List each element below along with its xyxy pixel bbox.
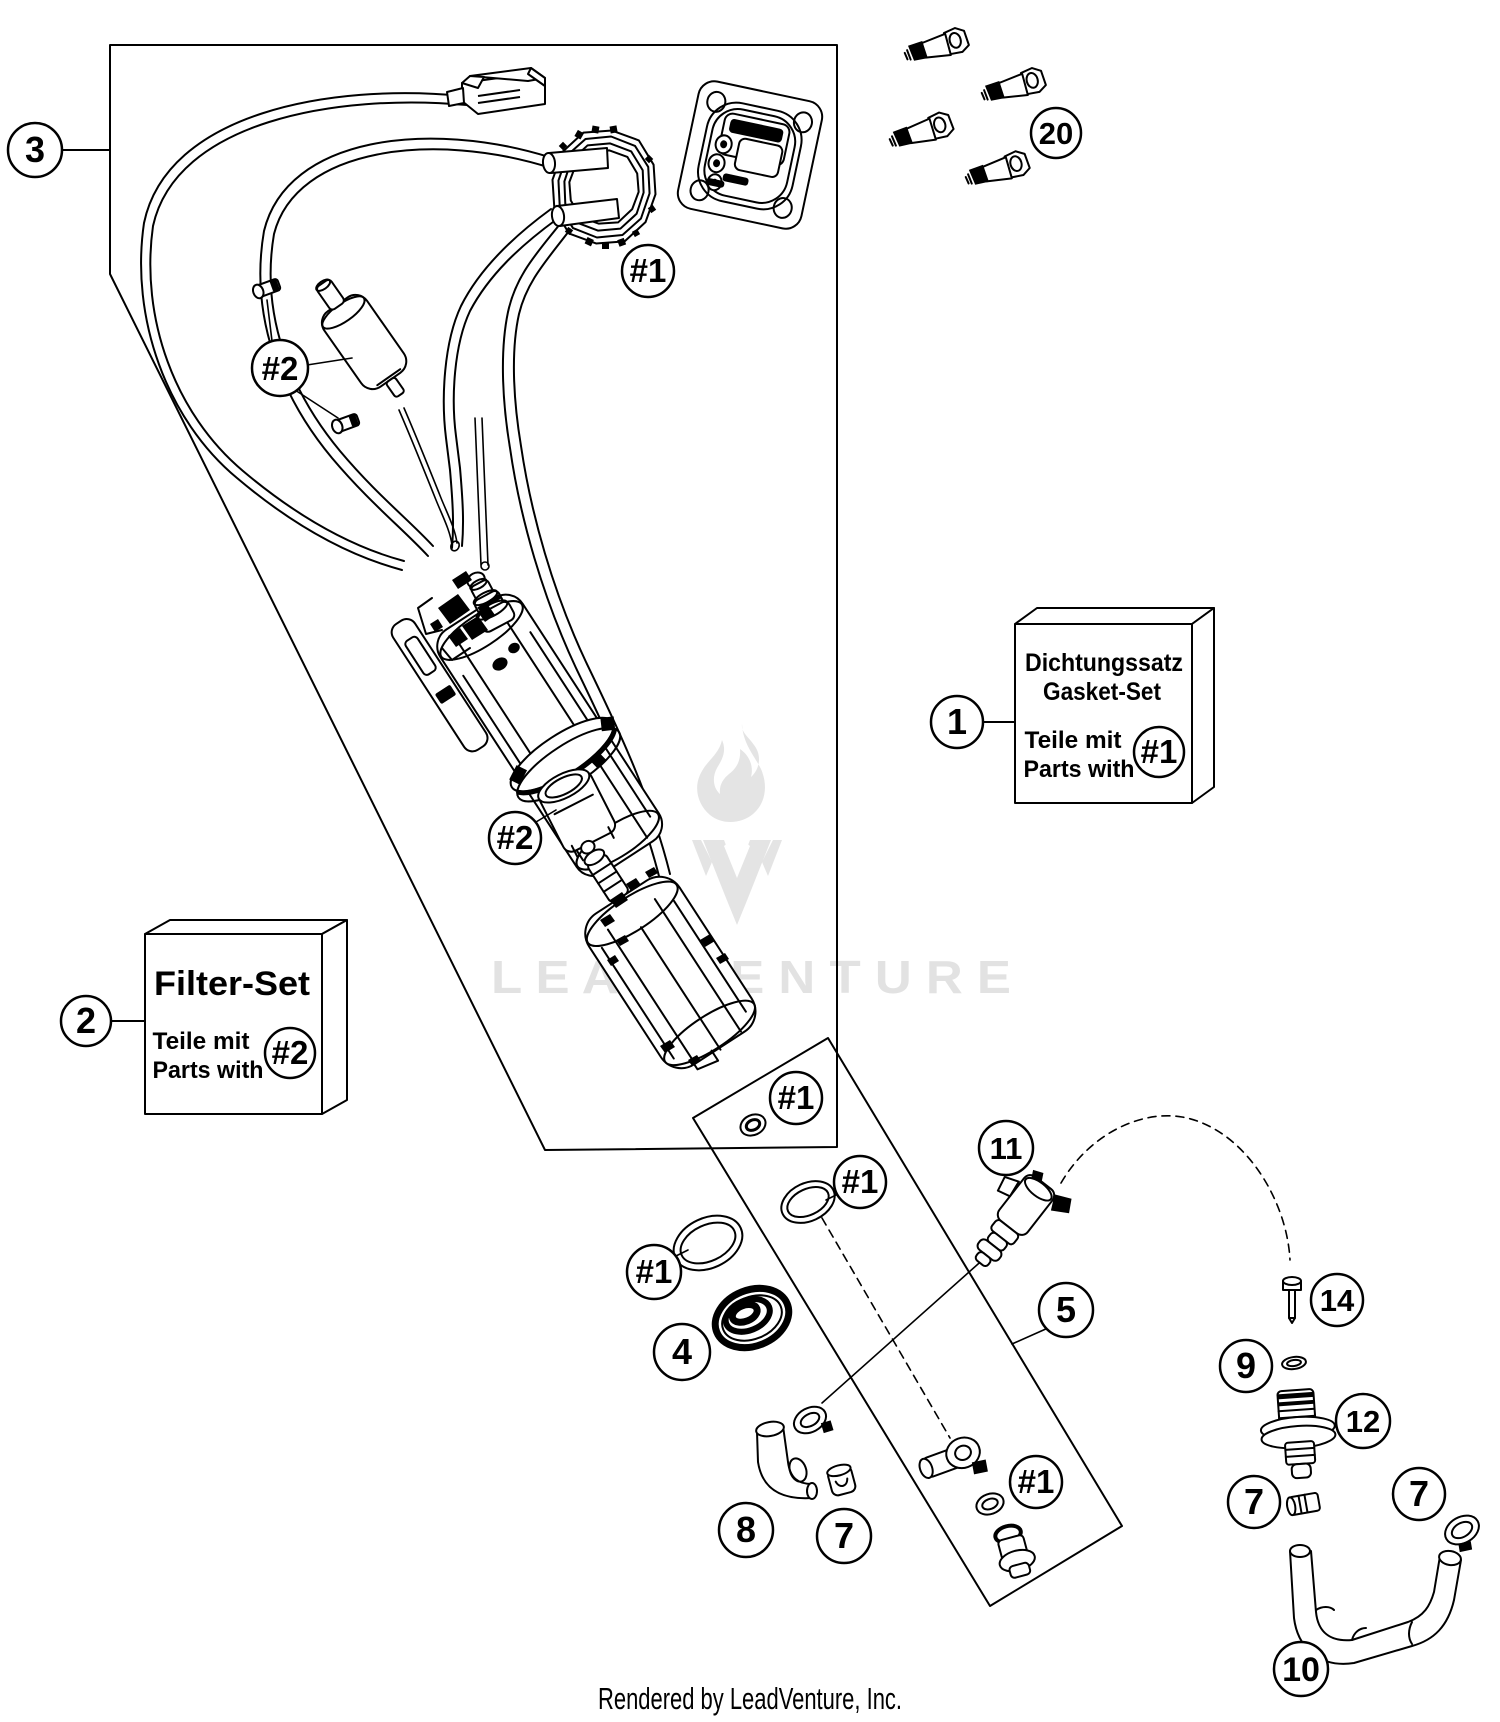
svg-text:4: 4 — [672, 1331, 692, 1372]
svg-text:7: 7 — [1244, 1481, 1264, 1522]
svg-text:#2: #2 — [262, 350, 299, 387]
svg-text:1: 1 — [947, 701, 967, 742]
svg-text:7: 7 — [1409, 1473, 1429, 1514]
svg-text:#2: #2 — [272, 1034, 309, 1071]
svg-text:#2: #2 — [497, 819, 534, 856]
svg-text:2: 2 — [76, 1000, 96, 1041]
svg-text:Parts with: Parts with — [1024, 756, 1135, 783]
svg-text:5: 5 — [1056, 1289, 1076, 1330]
svg-text:#1: #1 — [630, 252, 667, 289]
svg-text:Parts with: Parts with — [153, 1057, 264, 1084]
svg-text:11: 11 — [990, 1131, 1023, 1166]
svg-text:Filter-Set: Filter-Set — [154, 965, 310, 1003]
svg-text:#1: #1 — [636, 1253, 673, 1290]
svg-text:Gasket-Set: Gasket-Set — [1043, 678, 1162, 706]
svg-text:Teile mit: Teile mit — [153, 1028, 250, 1055]
svg-text:12: 12 — [1346, 1404, 1380, 1439]
svg-text:10: 10 — [1282, 1651, 1320, 1689]
svg-text:Teile mit: Teile mit — [1025, 727, 1122, 754]
svg-text:8: 8 — [736, 1509, 756, 1550]
svg-text:#1: #1 — [842, 1163, 879, 1200]
svg-text:L E A D V E N T U R E: L E A D V E N T U R E — [491, 951, 1011, 1003]
svg-text:3: 3 — [25, 129, 45, 170]
svg-text:20: 20 — [1039, 116, 1073, 151]
svg-text:#1: #1 — [778, 1079, 815, 1116]
svg-text:7: 7 — [834, 1515, 854, 1556]
svg-text:Dichtungssatz: Dichtungssatz — [1025, 649, 1183, 677]
svg-text:9: 9 — [1236, 1345, 1256, 1386]
svg-text:#1: #1 — [1141, 733, 1178, 770]
svg-text:Rendered by LeadVenture, Inc.: Rendered by LeadVenture, Inc. — [598, 1681, 902, 1716]
svg-text:#1: #1 — [1018, 1463, 1055, 1500]
svg-text:14: 14 — [1320, 1283, 1355, 1318]
